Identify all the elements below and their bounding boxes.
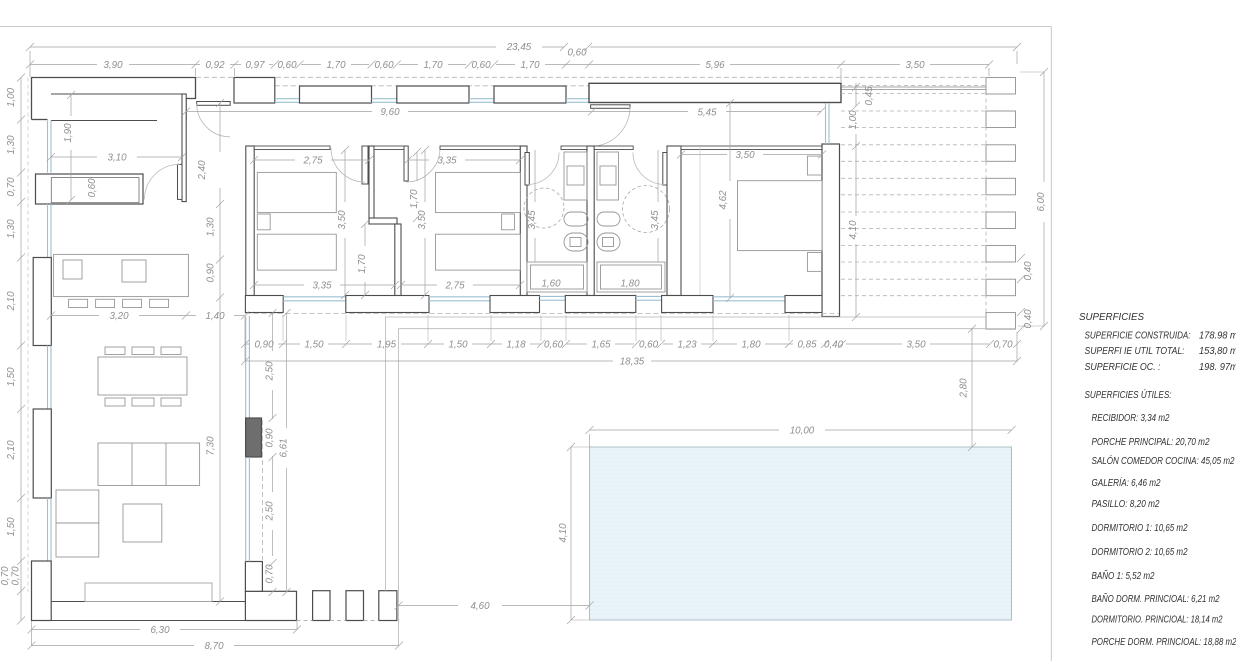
svg-text:3,10: 3,10 (107, 152, 127, 163)
svg-text:PASILLO: 8,20 m2: PASILLO: 8,20 m2 (1092, 499, 1160, 510)
svg-text:1,50: 1,50 (448, 339, 468, 350)
svg-text:1,30: 1,30 (6, 219, 17, 239)
svg-text:1,70: 1,70 (409, 189, 420, 209)
svg-text:DORMITORIO 1: 10,65 m2: DORMITORIO 1: 10,65 m2 (1092, 523, 1188, 534)
svg-text:2,10: 2,10 (6, 291, 17, 312)
svg-text:1,70: 1,70 (326, 60, 346, 71)
svg-text:BAÑO 1: 5,52 m2: BAÑO 1: 5,52 m2 (1092, 569, 1155, 582)
svg-text:6,30: 6,30 (150, 625, 170, 636)
svg-text:0,40: 0,40 (1023, 261, 1034, 281)
svg-text:1,18: 1,18 (506, 339, 526, 350)
svg-text:0,70: 0,70 (6, 177, 17, 197)
svg-text:1,70: 1,70 (423, 60, 443, 71)
svg-text:4,10: 4,10 (558, 523, 569, 543)
svg-text:BAÑO DORM. PRINCIOAL: 6,21 m2: BAÑO DORM. PRINCIOAL: 6,21 m2 (1092, 592, 1220, 605)
svg-text:3,20: 3,20 (109, 311, 129, 322)
svg-text:2,50: 2,50 (265, 501, 276, 522)
svg-text:9,60: 9,60 (380, 107, 400, 118)
svg-text:0,60: 0,60 (544, 339, 564, 350)
svg-text:6,00: 6,00 (1036, 192, 1047, 212)
svg-text:5,45: 5,45 (697, 107, 717, 118)
svg-text:23,45: 23,45 (506, 42, 532, 53)
svg-text:DORMITORIO 2: 10,65 m2: DORMITORIO 2: 10,65 m2 (1092, 547, 1188, 558)
svg-text:1,70: 1,70 (357, 254, 368, 274)
svg-text:2,75: 2,75 (444, 280, 465, 291)
svg-text:3,50: 3,50 (337, 210, 348, 230)
svg-text:7,30: 7,30 (206, 436, 217, 456)
svg-text:1,50: 1,50 (6, 517, 17, 537)
svg-text:3,50: 3,50 (905, 60, 925, 71)
svg-text:0,60: 0,60 (277, 60, 297, 71)
svg-text:2,40: 2,40 (197, 160, 208, 181)
svg-text:0,60: 0,60 (374, 60, 394, 71)
svg-text:4,10: 4,10 (848, 220, 859, 240)
svg-text:2,50: 2,50 (265, 361, 276, 382)
svg-text:3,45: 3,45 (650, 210, 661, 230)
svg-text:DORMITORIO. PRINCIOAL: 18,14 m: DORMITORIO. PRINCIOAL: 18,14 m2 (1092, 615, 1223, 626)
svg-text:PORCHE PRINCIPAL: 20,70 m2: PORCHE PRINCIPAL: 20,70 m2 (1092, 437, 1210, 448)
svg-text:1,65: 1,65 (591, 339, 611, 350)
svg-text:1,00: 1,00 (6, 87, 17, 107)
svg-text:178.98 m2: 178.98 m2 (1199, 331, 1236, 342)
svg-text:SUPERFICIE CONSTRUIDA:: SUPERFICIE CONSTRUIDA: (1085, 331, 1191, 342)
svg-text:0,92: 0,92 (205, 60, 225, 71)
svg-text:1,80: 1,80 (741, 339, 761, 350)
svg-text:1,90: 1,90 (63, 123, 74, 143)
svg-text:0,90: 0,90 (206, 263, 217, 283)
svg-text:RECIBIDOR: 3,34 m2: RECIBIDOR: 3,34 m2 (1092, 413, 1170, 424)
svg-text:0,60: 0,60 (639, 339, 659, 350)
svg-text:10,00: 10,00 (790, 425, 815, 436)
svg-text:1,30: 1,30 (206, 217, 217, 237)
svg-text:SUPERFICIES: SUPERFICIES (1079, 312, 1144, 323)
svg-text:0,85: 0,85 (797, 339, 817, 350)
svg-text:SUPERFI IE UTIL TOTAL:: SUPERFI IE UTIL TOTAL: (1085, 346, 1185, 357)
svg-text:0,40: 0,40 (824, 339, 844, 350)
svg-text:SUPERFICIES ÚTILES:: SUPERFICIES ÚTILES: (1085, 388, 1172, 401)
svg-text:0,60: 0,60 (567, 48, 587, 59)
svg-text:0,70: 0,70 (0, 566, 11, 586)
svg-text:0,45: 0,45 (864, 86, 875, 106)
svg-text:1,50: 1,50 (6, 367, 17, 387)
svg-text:198. 97m2: 198. 97m2 (1199, 362, 1236, 373)
svg-text:0,97: 0,97 (245, 60, 265, 71)
svg-text:2,10: 2,10 (6, 440, 17, 461)
svg-text:3,50: 3,50 (417, 210, 428, 230)
svg-text:4,62: 4,62 (718, 190, 729, 210)
svg-text:3,35: 3,35 (312, 280, 332, 291)
svg-text:1,30: 1,30 (6, 135, 17, 155)
svg-text:153,80 m2: 153,80 m2 (1199, 346, 1236, 357)
svg-text:0,60: 0,60 (471, 60, 491, 71)
svg-text:3,50: 3,50 (906, 339, 926, 350)
svg-text:3,45: 3,45 (527, 210, 538, 230)
svg-text:1,70: 1,70 (520, 60, 540, 71)
svg-text:SUPERFICIE OC. :: SUPERFICIE OC. : (1085, 362, 1161, 373)
svg-text:1,60: 1,60 (541, 278, 561, 289)
svg-text:0,70: 0,70 (11, 566, 22, 586)
svg-text:18,35: 18,35 (620, 356, 645, 367)
svg-text:0,90: 0,90 (265, 428, 276, 448)
svg-text:3,90: 3,90 (103, 60, 123, 71)
svg-text:PORCHE DORM. PRINCIOAL: 18,88: PORCHE DORM. PRINCIOAL: 18,88 m2 (1092, 637, 1236, 648)
svg-text:5,96: 5,96 (705, 60, 725, 71)
svg-text:SALÓN COMEDOR COCINA: 45,05 m2: SALÓN COMEDOR COCINA: 45,05 m2 (1092, 454, 1235, 467)
svg-text:1,00: 1,00 (848, 110, 859, 130)
svg-text:1,50: 1,50 (304, 339, 324, 350)
svg-text:1,80: 1,80 (620, 278, 640, 289)
svg-text:8,70: 8,70 (204, 641, 224, 652)
svg-text:0,70: 0,70 (993, 339, 1013, 350)
svg-text:1,40: 1,40 (205, 311, 225, 322)
svg-text:0,90: 0,90 (254, 339, 274, 350)
svg-text:1,23: 1,23 (677, 339, 697, 350)
svg-text:0,60: 0,60 (87, 178, 98, 198)
svg-text:6,61: 6,61 (279, 438, 290, 457)
svg-text:3,50: 3,50 (735, 150, 755, 161)
svg-text:GALERÍA: 6,46 m2: GALERÍA: 6,46 m2 (1092, 476, 1161, 489)
svg-text:0,40: 0,40 (1023, 309, 1034, 329)
svg-text:3,35: 3,35 (437, 155, 457, 166)
svg-text:1,95: 1,95 (377, 339, 397, 350)
svg-text:4,60: 4,60 (470, 601, 490, 612)
svg-text:2,75: 2,75 (302, 155, 323, 166)
svg-text:0,70: 0,70 (265, 564, 276, 584)
svg-text:2,80: 2,80 (959, 378, 970, 399)
